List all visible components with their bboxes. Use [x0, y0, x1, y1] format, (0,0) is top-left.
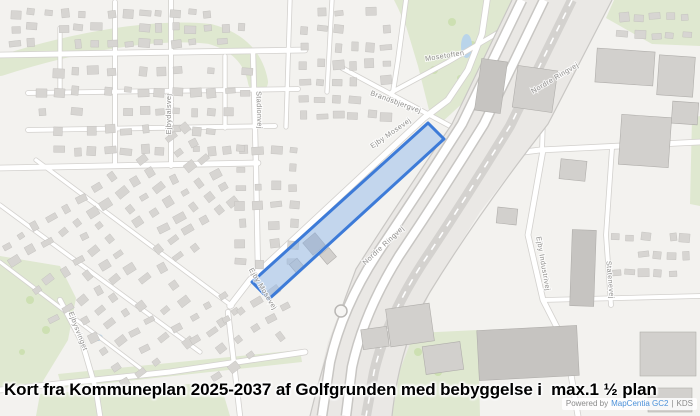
- large-building: [386, 303, 435, 347]
- large-building: [618, 114, 671, 167]
- map-attribution: Powered by MapCentia GC2 | KDS: [562, 398, 697, 410]
- attribution-provider-link[interactable]: MapCentia GC2: [611, 399, 668, 409]
- attribution-powered-by: Powered by: [566, 399, 608, 409]
- roundabout: [335, 305, 347, 317]
- street-label: Stadionvej: [254, 91, 264, 129]
- map-canvas[interactable]: Nordre RingvejNordre RingvejEjby Mosevej…: [0, 0, 700, 416]
- attribution-kds-label: KDS: [677, 399, 693, 409]
- street-label: Ejbydalsvej: [164, 94, 173, 135]
- large-building: [640, 332, 696, 376]
- large-building: [496, 207, 518, 225]
- large-building: [477, 325, 579, 380]
- large-building: [657, 55, 696, 97]
- map-screenshot: Nordre RingvejNordre RingvejEjby Mosevej…: [0, 0, 700, 416]
- map-caption: Kort fra Kommuneplan 2025-2037 af Golfgr…: [4, 381, 657, 398]
- large-building: [570, 230, 597, 307]
- attribution-separator: |: [671, 399, 673, 409]
- large-building: [422, 341, 464, 374]
- large-building: [595, 48, 655, 86]
- large-building: [559, 159, 587, 182]
- large-building: [361, 326, 390, 349]
- large-building: [671, 101, 698, 125]
